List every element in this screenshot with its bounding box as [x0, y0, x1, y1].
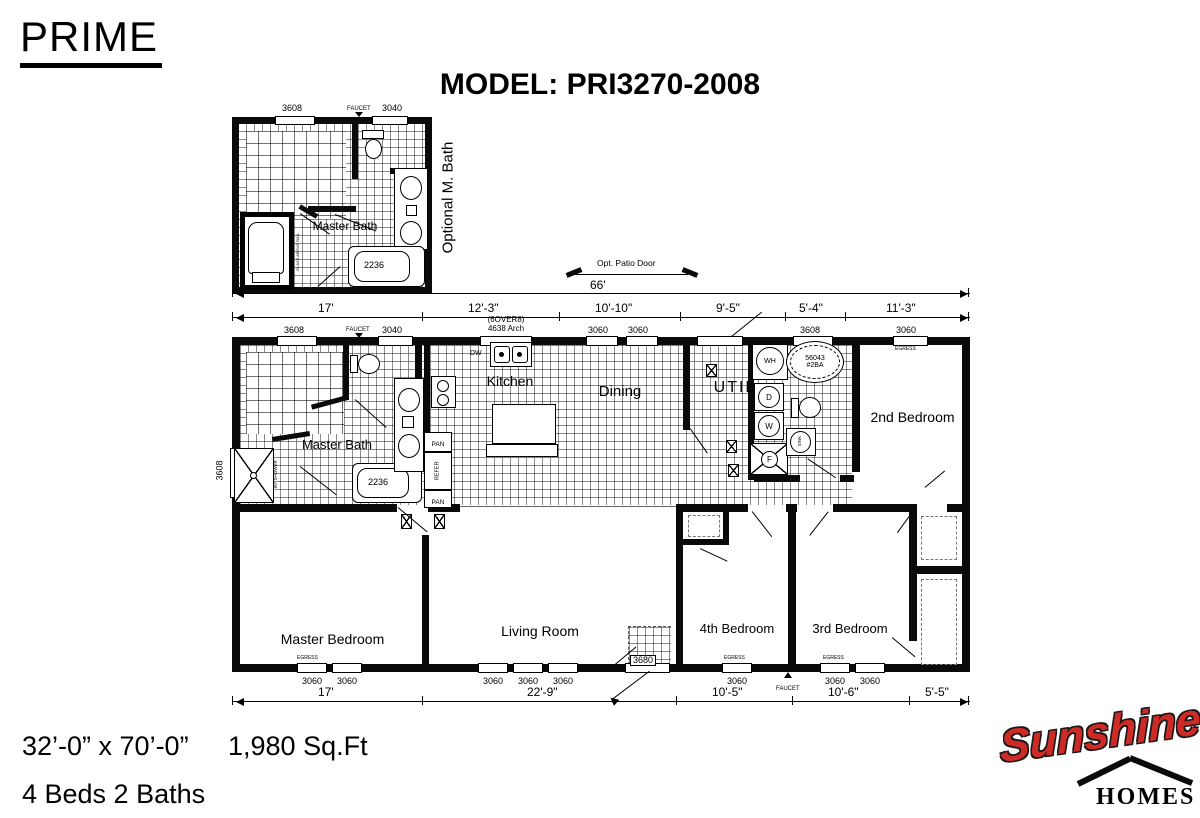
window	[478, 663, 508, 673]
burner	[437, 380, 449, 392]
cabinet	[406, 205, 417, 216]
window-label: 4638 Arch	[468, 325, 544, 333]
dim-label: 12'-3"	[468, 302, 499, 314]
home-size: 32’-0” x 70’-0”	[22, 733, 189, 760]
dim-label: 5'-4"	[799, 302, 823, 314]
shower-drain	[250, 472, 257, 479]
door-swing	[809, 511, 829, 535]
sink-label: SINK	[798, 419, 803, 463]
dim-tick	[968, 288, 969, 297]
dim-label: 22'-9"	[527, 686, 558, 698]
tub-size: 2236	[368, 478, 388, 487]
dim-label: 10'-6"	[828, 686, 859, 698]
wh-label: WH	[764, 358, 776, 365]
room-label: Kitchen	[470, 374, 550, 388]
drain	[517, 352, 522, 357]
wall	[754, 475, 800, 482]
dim-tick	[680, 312, 681, 321]
window	[722, 663, 752, 673]
dim-label: 9'-5"	[716, 302, 740, 314]
window	[378, 336, 413, 346]
furnace: F	[761, 451, 778, 468]
dim-line	[232, 293, 970, 294]
room-label: 2nd Bedroom	[855, 410, 970, 424]
dim-arrowhead	[232, 290, 244, 298]
wall	[232, 504, 397, 512]
cabinet	[402, 416, 414, 428]
toilet-bowl	[365, 139, 382, 159]
washer-label: W	[765, 422, 773, 431]
sink	[400, 176, 422, 200]
wall	[683, 345, 690, 430]
garden-tub-inner: 56043 #2BA	[790, 345, 840, 379]
closet-shelf	[921, 579, 957, 665]
burner	[437, 394, 449, 406]
wall	[308, 206, 356, 212]
window	[548, 663, 578, 673]
floor-register	[726, 440, 737, 453]
dryer: D	[758, 386, 780, 408]
dim-tick	[676, 696, 677, 705]
window-label: 3060	[337, 677, 357, 686]
furnace-label: F	[767, 455, 772, 464]
toilet	[362, 130, 384, 139]
floor-plan-page: PRIME MODEL: PRI3270-2008 3608 FAUCET 30…	[0, 0, 1200, 818]
room-label: Master Bath	[282, 438, 392, 451]
dim-tick	[909, 696, 910, 705]
model-title: MODEL: PRI3270-2008	[360, 70, 840, 100]
roof-icon	[1129, 755, 1193, 786]
brand-title: PRIME	[20, 16, 162, 68]
dim-arrowhead	[232, 698, 244, 706]
window	[513, 663, 543, 673]
wall	[676, 504, 748, 512]
dim-tick	[845, 312, 846, 321]
window	[626, 336, 658, 346]
patio-note: Opt. Patio Door	[597, 259, 656, 268]
dim-arrowhead	[960, 290, 972, 298]
wall	[947, 504, 970, 512]
garden-tub-label: #2BA	[806, 362, 823, 369]
wall	[852, 345, 860, 472]
logo-sunshine: Sunshine	[999, 696, 1200, 769]
window-label: 3608	[284, 326, 304, 335]
wall	[232, 117, 239, 294]
window	[893, 336, 928, 346]
dim-label: 10'-5"	[712, 686, 743, 698]
floor-register	[434, 514, 445, 529]
floor-register	[728, 464, 739, 477]
window-label: 3040	[382, 104, 402, 113]
wall	[840, 475, 854, 482]
dim-arrowhead	[960, 314, 972, 322]
window	[332, 663, 362, 673]
pantry-label: PAN	[432, 499, 445, 506]
washer: W	[758, 415, 780, 437]
wall	[422, 535, 429, 672]
shower-base	[252, 272, 280, 283]
shower-unit	[248, 222, 284, 274]
window	[586, 336, 618, 346]
sink	[398, 434, 420, 458]
dim-line	[232, 317, 970, 318]
drain	[499, 352, 504, 357]
window	[820, 663, 850, 673]
window-label: 3680	[630, 655, 656, 666]
wall	[676, 511, 683, 672]
window	[275, 116, 315, 125]
closet-shelf	[688, 515, 720, 537]
dim-label: 17'	[318, 302, 334, 314]
room-label: Master Bedroom	[270, 632, 395, 646]
dim-label: 17'	[318, 686, 334, 698]
home-area: 1,980 Sq.Ft	[228, 733, 368, 760]
pantry: PAN	[424, 490, 452, 508]
door-swing	[700, 548, 728, 562]
dim-tick	[559, 312, 560, 321]
kitchen-island	[492, 404, 556, 444]
egress-label: EGRESS	[895, 347, 916, 352]
closet-shelf	[921, 516, 957, 560]
window	[855, 663, 885, 673]
egress-label: EGRESS	[822, 656, 845, 661]
window-label: 3040	[382, 326, 402, 335]
window-label: 3608	[216, 460, 225, 480]
island-counter	[486, 444, 558, 457]
egress-label: EGRESS	[296, 656, 319, 661]
dim-arrow	[682, 267, 699, 278]
dim-overall: 66'	[590, 279, 606, 291]
wall	[909, 511, 917, 641]
window-label: 3060	[483, 677, 503, 686]
dim-tick	[792, 696, 793, 705]
dim-label: 10'-10"	[595, 302, 632, 314]
room-label: Dining	[580, 384, 660, 399]
door-swing	[925, 470, 946, 488]
garden-tub-label: 56043	[805, 355, 824, 362]
dim-arrow	[566, 267, 583, 278]
logo-homes: HOMES	[1096, 785, 1195, 809]
dim-arrowhead	[232, 314, 244, 322]
wall	[788, 511, 796, 672]
window-label: 3060	[896, 326, 916, 335]
toilet-bowl	[358, 354, 380, 374]
dim-tick	[422, 696, 423, 705]
closet-floor	[246, 352, 344, 434]
dim-line	[232, 701, 970, 702]
dim-label: 11'-3"	[886, 302, 916, 314]
wall	[352, 123, 358, 179]
toilet	[350, 355, 358, 373]
wall	[833, 504, 917, 512]
inset-side-label: Optional M. Bath	[441, 118, 456, 278]
dryer-label: D	[766, 393, 772, 402]
dw-label: DW	[470, 350, 482, 357]
dim-tick	[785, 312, 786, 321]
window-label: 3608	[800, 326, 820, 335]
dim-arrowhead	[960, 698, 972, 706]
dim-line	[575, 274, 688, 275]
roof-icon	[1077, 756, 1132, 787]
window-label: 3608	[282, 104, 302, 113]
patio-leader	[612, 671, 650, 700]
room-label: 4th Bedroom	[692, 622, 782, 635]
toilet	[791, 398, 799, 418]
shower-label: 60" SHOWER	[274, 446, 279, 502]
wall	[683, 539, 727, 545]
sink	[400, 221, 422, 245]
sunshine-homes-logo: HOMES Sunshine	[1000, 722, 1196, 814]
window-label: (6OVER8)	[468, 316, 544, 324]
floor-edge	[460, 506, 676, 507]
wall	[917, 566, 962, 574]
sink	[398, 388, 420, 412]
patio-door	[697, 336, 743, 346]
faucet-icon	[784, 668, 792, 678]
wall	[343, 345, 349, 400]
room-label: Living Room	[495, 624, 585, 638]
tub-size: 2236	[364, 261, 384, 270]
water-heater: WH	[756, 347, 784, 375]
toilet-bowl	[799, 397, 821, 418]
dim-tick	[422, 312, 423, 321]
window-label: 3060	[588, 326, 608, 335]
window	[297, 663, 327, 673]
floor-register	[706, 364, 717, 377]
window	[372, 116, 408, 125]
faucet-label: FAUCET	[776, 686, 800, 692]
door-swing	[751, 511, 772, 537]
room-label: 3rd Bedroom	[805, 622, 895, 635]
dim-label: 5'-5"	[925, 686, 949, 698]
window-label: 3060	[860, 677, 880, 686]
egress-label: EGRESS	[723, 656, 746, 661]
window	[277, 336, 317, 346]
beds-baths: 4 Beds 2 Baths	[22, 781, 205, 808]
window-label: 3060	[628, 326, 648, 335]
dim-tick	[232, 288, 233, 297]
